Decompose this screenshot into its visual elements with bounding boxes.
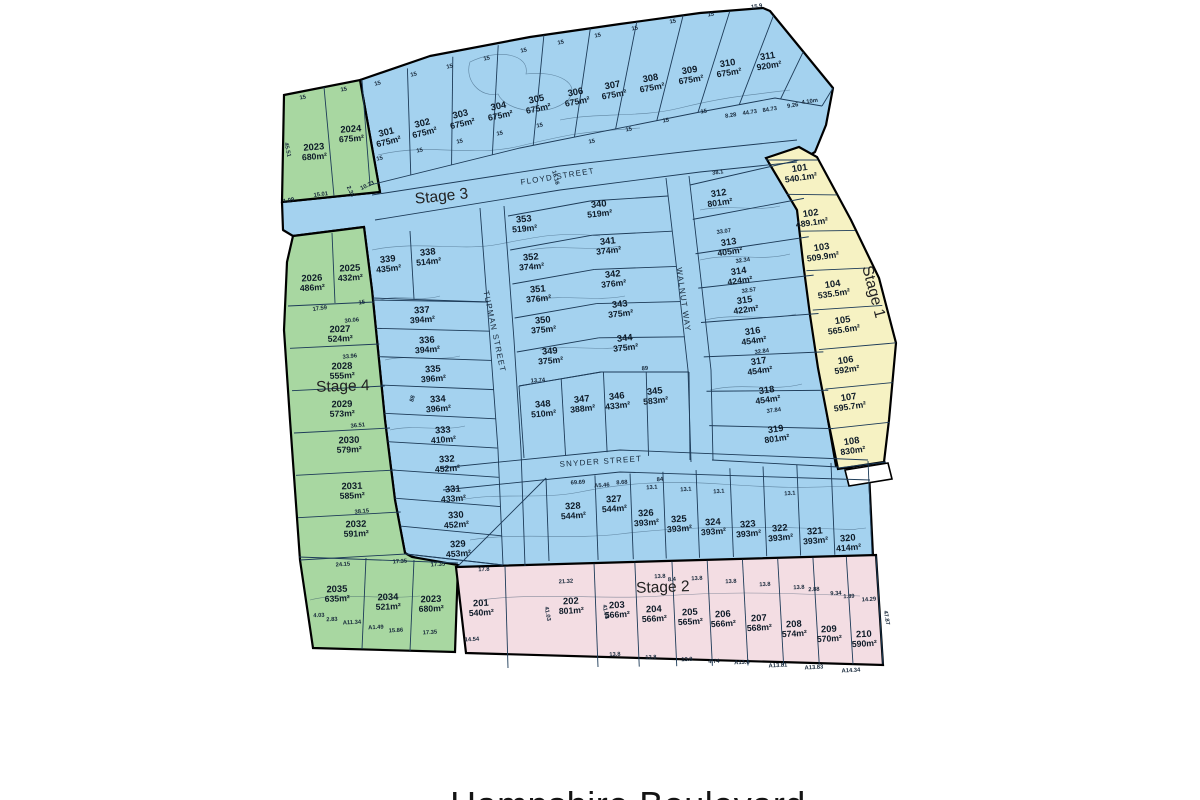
lot-area: 544m² bbox=[602, 503, 628, 515]
lot-label: 2029573m² bbox=[329, 398, 355, 419]
lot-area: 540m² bbox=[469, 607, 495, 618]
plan-canvas: 151545.511.0915.012.3510.231515151515151… bbox=[0, 0, 1200, 800]
lot-area: 590m² bbox=[852, 638, 878, 649]
lot-area: 396m² bbox=[426, 403, 452, 415]
dimension-label: 9.34 bbox=[830, 591, 842, 598]
dimension-label: 84 bbox=[657, 477, 665, 483]
lot-area: 579m² bbox=[336, 444, 362, 455]
dimension-label: A13.83 bbox=[804, 664, 824, 671]
lot-label: 2031585m² bbox=[339, 480, 365, 501]
dimension-label: 13.1 bbox=[680, 487, 692, 494]
dimension-label: 15.86 bbox=[389, 628, 405, 635]
dimension-label: A13.81 bbox=[768, 662, 788, 669]
dimension-label: 13.8 bbox=[759, 582, 771, 589]
lot-label: 2027524m² bbox=[327, 323, 353, 344]
dimension-label: 13.8 bbox=[793, 585, 805, 592]
lot-area: 568m² bbox=[747, 622, 773, 633]
lot-area: 393m² bbox=[634, 517, 660, 529]
stage-label: Stage 2 bbox=[636, 578, 690, 597]
dimension-label: A5.46 bbox=[594, 482, 611, 489]
lot-area: 680m² bbox=[302, 151, 328, 163]
lot-area: 675m² bbox=[339, 133, 365, 145]
dimension-label: 2.83 bbox=[326, 617, 338, 624]
lot-area: 635m² bbox=[324, 593, 350, 604]
lot-area: 566m² bbox=[711, 618, 737, 629]
lot-label: 2034521m² bbox=[375, 591, 401, 612]
lot-area: 452m² bbox=[435, 463, 461, 475]
dimension-label: 13.1 bbox=[784, 491, 796, 498]
lot-area: 432m² bbox=[338, 272, 364, 283]
lot-area: 394m² bbox=[415, 344, 441, 356]
dimension-label: 13.8 bbox=[609, 652, 621, 659]
lot-area: 433m² bbox=[441, 493, 467, 505]
lot-area: 521m² bbox=[375, 601, 401, 612]
dimension-label: 17.8 bbox=[478, 567, 490, 574]
dimension-label: 47.87 bbox=[882, 610, 890, 625]
lot-area: 544m² bbox=[561, 510, 587, 522]
dimension-label: A1.49 bbox=[368, 625, 385, 632]
dimension-label: 13.8 bbox=[681, 657, 693, 664]
dimension-label: 14.29 bbox=[862, 597, 878, 604]
dimension-label: A14.34 bbox=[841, 667, 861, 674]
subdivision-plan-map: 151545.511.0915.012.3510.231515151515151… bbox=[0, 0, 1200, 800]
lot-label: 2024675m² bbox=[338, 122, 365, 144]
lot-area: 566m² bbox=[642, 613, 668, 624]
lot-area: 452m² bbox=[444, 519, 470, 531]
lot-area: 565m² bbox=[678, 616, 704, 627]
dimension-label: 13.74 bbox=[530, 377, 546, 384]
dimension-label: 13.8 bbox=[645, 655, 657, 662]
dimension-label: 14.54 bbox=[465, 637, 481, 644]
lot-area: 680m² bbox=[418, 603, 444, 614]
lot-area: 570m² bbox=[817, 633, 843, 644]
lot-label: 2030579m² bbox=[336, 434, 362, 455]
lot-label: 2026486m² bbox=[299, 271, 325, 293]
dimension-label: 69.69 bbox=[570, 479, 586, 486]
dimension-label: A11.34 bbox=[343, 619, 362, 626]
dimension-label: 21.32 bbox=[559, 579, 574, 586]
dimension-label: 8.68 bbox=[616, 480, 628, 487]
dimension-label: 17.35 bbox=[430, 561, 446, 568]
boulevard-title: Hampshire Boulevard bbox=[28, 784, 1200, 800]
lot-area: 394m² bbox=[410, 314, 436, 326]
stage-label: Stage 4 bbox=[316, 377, 370, 396]
lot-area: 486m² bbox=[300, 282, 326, 293]
parcel-divider bbox=[786, 194, 837, 195]
lot-area: 453m² bbox=[446, 548, 472, 560]
lot-area: 524m² bbox=[327, 333, 353, 344]
lot-area: 396m² bbox=[421, 373, 447, 385]
dimension-label: 24.15 bbox=[335, 561, 351, 568]
stage2-region bbox=[456, 555, 883, 665]
lot-area: 573m² bbox=[329, 408, 355, 419]
dimension-label: 13.8 bbox=[691, 576, 703, 583]
lot-area: 591m² bbox=[343, 528, 369, 539]
lot-area: 574m² bbox=[782, 628, 808, 639]
dimension-label: 17.35 bbox=[392, 558, 408, 565]
lot-area: 393m² bbox=[701, 526, 727, 538]
lot-label: 2025432m² bbox=[337, 261, 363, 283]
dimension-label: 13.8 bbox=[725, 579, 737, 586]
dimension-label: 2.88 bbox=[808, 587, 820, 594]
map-regions bbox=[282, 8, 896, 665]
dimension-label: 4.74 bbox=[708, 659, 720, 666]
lot-area: 410m² bbox=[431, 434, 457, 446]
dimension-label: 13.1 bbox=[713, 489, 725, 496]
lot-label: 2023680m² bbox=[301, 140, 328, 162]
lot-area: 801m² bbox=[559, 605, 585, 616]
dimension-label: 89 bbox=[642, 366, 650, 372]
lot-label: 2035635m² bbox=[324, 583, 350, 604]
lot-label: 2032591m² bbox=[343, 518, 369, 539]
dimension-label: 13.1 bbox=[646, 485, 658, 492]
dimension-label: 1.89 bbox=[843, 594, 855, 601]
dimension-label: A13.8 bbox=[734, 660, 751, 667]
lot-area: 393m² bbox=[667, 523, 693, 535]
lot-label: 2023680m² bbox=[418, 593, 444, 614]
lot-area: 566m² bbox=[605, 609, 631, 620]
dimension-label: 4.03 bbox=[313, 613, 325, 620]
lot-area: 585m² bbox=[339, 490, 365, 501]
dimension-label: 17.35 bbox=[423, 630, 439, 637]
